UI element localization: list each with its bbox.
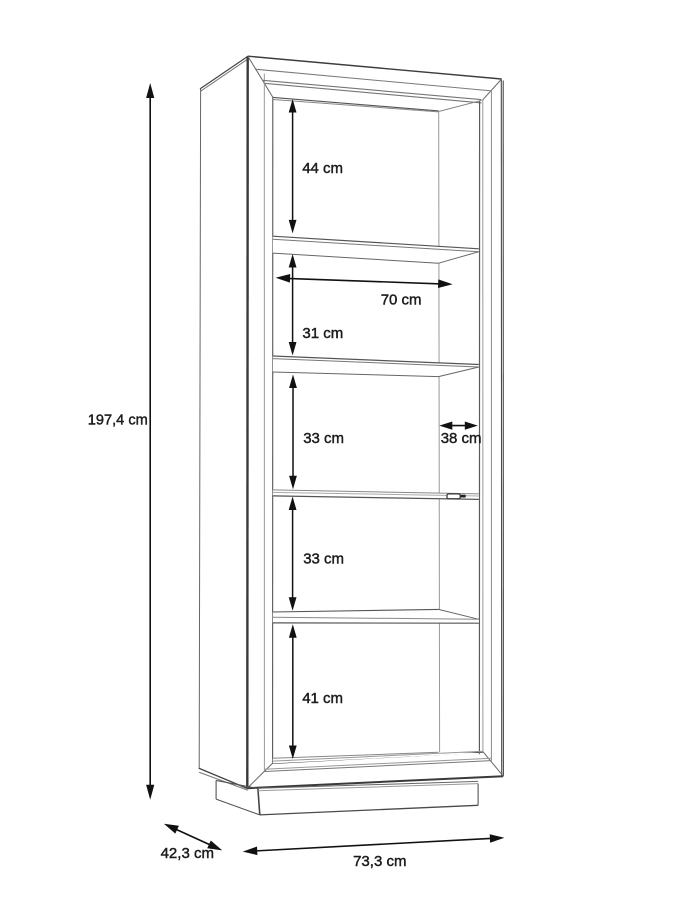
svg-text:73,3 cm: 73,3 cm xyxy=(353,853,406,870)
svg-text:44 cm: 44 cm xyxy=(302,160,343,177)
svg-text:38 cm: 38 cm xyxy=(441,430,482,447)
svg-text:33 cm: 33 cm xyxy=(303,551,344,568)
svg-text:70 cm: 70 cm xyxy=(381,291,422,308)
svg-text:33 cm: 33 cm xyxy=(303,430,344,447)
svg-text:42,3 cm: 42,3 cm xyxy=(161,845,214,862)
svg-text:41 cm: 41 cm xyxy=(302,690,343,707)
svg-text:197,4 cm: 197,4 cm xyxy=(88,413,148,429)
svg-text:31 cm: 31 cm xyxy=(302,325,343,342)
